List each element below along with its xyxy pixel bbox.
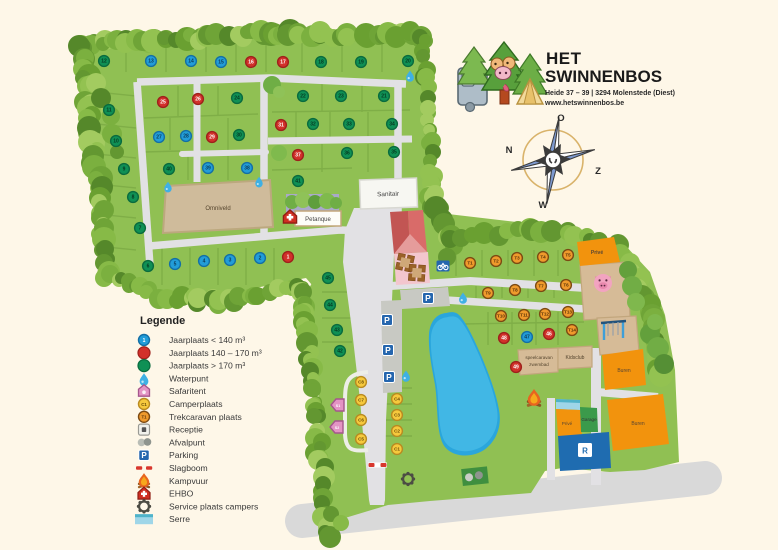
svg-text:T9: T9 [485,291,491,296]
svg-text:C5: C5 [358,437,364,442]
svg-text:14: 14 [188,59,194,65]
svg-text:1: 1 [287,255,290,261]
svg-text:Heide 37 – 39 | 3294 Molenst: Heide 37 – 39 | 3294 Molenstede (Diest) [545,90,675,97]
svg-text:P: P [386,372,392,382]
svg-text:Kidsclub: Kidsclub [566,355,585,361]
svg-text:Privé: Privé [591,250,603,256]
svg-text:34: 34 [389,122,395,128]
svg-text:20: 20 [405,59,411,65]
svg-text:T13: T13 [564,310,572,315]
svg-text:35: 35 [391,150,397,156]
svg-text:Garage: Garage [581,417,597,422]
svg-text:T5: T5 [565,253,571,258]
svg-text:Sanitair: Sanitair [377,191,400,199]
svg-text:2: 2 [259,256,262,262]
svg-text:P: P [385,345,391,355]
svg-text:Jaarplaats 140 – 170 m³: Jaarplaats 140 – 170 m³ [169,348,262,358]
svg-text:HET: HET [546,49,582,68]
svg-text:Receptie: Receptie [169,425,203,435]
svg-text:T3: T3 [514,256,520,261]
svg-text:33: 33 [346,122,352,128]
svg-text:Jaarplaats > 170 m³: Jaarplaats > 170 m³ [169,361,245,371]
svg-text:P: P [425,293,431,303]
svg-text:42: 42 [337,349,343,355]
svg-text:Privé: Privé [562,421,573,426]
svg-text:30: 30 [236,133,242,139]
svg-text:28: 28 [183,134,189,140]
svg-text:EHBO: EHBO [169,489,194,499]
svg-text:C1: C1 [394,447,400,452]
svg-text:Camperplaats: Camperplaats [169,399,223,409]
svg-text:41: 41 [295,179,301,185]
svg-text:12: 12 [101,59,107,65]
svg-text:1: 1 [143,338,146,344]
svg-text:P: P [141,451,147,460]
svg-text:Service plaats campers: Service plaats campers [169,501,258,511]
svg-text:O: O [557,113,564,124]
svg-text:C6: C6 [358,418,364,423]
svg-text:3: 3 [229,258,232,264]
svg-text:T2: T2 [493,259,499,264]
svg-text:31: 31 [278,123,284,129]
svg-text:SWINNENBOS: SWINNENBOS [545,67,662,86]
svg-text:Jaarplaats < 140 m³: Jaarplaats < 140 m³ [169,335,245,345]
svg-text:19: 19 [358,60,364,66]
svg-text:C2: C2 [394,429,400,434]
svg-text:13: 13 [148,59,154,65]
svg-text:10: 10 [113,139,119,145]
svg-text:T12: T12 [541,312,549,317]
svg-text:C3: C3 [394,413,400,418]
svg-text:T7: T7 [538,284,544,289]
svg-text:25: 25 [160,100,166,106]
svg-text:43: 43 [334,328,340,334]
svg-text:27: 27 [156,135,162,141]
svg-text:C7: C7 [358,398,364,403]
svg-text:T4: T4 [540,255,546,260]
svg-text:17: 17 [280,60,286,66]
svg-text:T1: T1 [141,415,147,420]
svg-text:C1: C1 [141,402,147,407]
svg-text:18: 18 [318,60,324,66]
svg-text:Waterpunt: Waterpunt [169,373,209,383]
svg-text:48: 48 [501,336,507,342]
svg-text:Legende: Legende [140,315,185,327]
svg-text:www.hetswinnenbos.be: www.hetswinnenbos.be [544,100,624,107]
svg-text:N: N [506,145,513,156]
svg-text:S1: S1 [336,404,340,408]
svg-text:Trekcaravan plaats: Trekcaravan plaats [169,412,242,422]
svg-text:22: 22 [300,94,306,100]
svg-text:39: 39 [205,166,211,172]
svg-text:32: 32 [310,122,316,128]
svg-text:zwembad: zwembad [529,362,549,367]
svg-text:21: 21 [381,94,387,100]
svg-text:Buren: Buren [631,421,645,427]
svg-text:Z: Z [595,166,601,177]
svg-text:9: 9 [123,167,126,173]
svg-text:5: 5 [174,262,177,268]
svg-text:45: 45 [325,276,331,282]
svg-text:8: 8 [132,195,135,201]
svg-text:W: W [539,200,548,211]
svg-text:P: P [384,315,390,325]
svg-text:15: 15 [218,60,224,66]
svg-text:Slagboom: Slagboom [169,463,208,473]
svg-text:Serre: Serre [169,514,190,524]
svg-text:Safaritent: Safaritent [169,386,206,396]
svg-text:46: 46 [546,332,552,338]
svg-text:Afvalpunt: Afvalpunt [169,437,205,447]
svg-text:40: 40 [166,167,172,173]
svg-text:24: 24 [234,96,240,102]
svg-text:T11: T11 [520,313,528,318]
svg-text:26: 26 [195,97,201,103]
svg-text:16: 16 [248,60,254,66]
svg-text:11: 11 [106,108,112,114]
svg-text:37: 37 [295,153,301,159]
svg-text:38: 38 [244,166,250,172]
svg-text:49: 49 [513,365,519,371]
svg-text:44: 44 [327,303,333,309]
svg-text:T14: T14 [568,328,576,333]
svg-text:C4: C4 [394,397,400,402]
svg-text:4: 4 [203,259,206,265]
svg-text:7: 7 [139,226,142,232]
svg-text:R: R [582,447,588,456]
svg-text:6: 6 [147,264,150,270]
svg-text:23: 23 [338,94,344,100]
svg-text:Buren: Buren [617,368,631,374]
svg-text:T6: T6 [563,283,569,288]
svg-text:Omniveld: Omniveld [205,206,230,212]
svg-text:47: 47 [524,335,530,341]
svg-text:T1: T1 [467,261,473,266]
svg-text:29: 29 [209,135,215,141]
svg-text:Petanque: Petanque [305,217,331,223]
svg-text:S2: S2 [335,426,339,430]
svg-text:Parking: Parking [169,450,198,460]
svg-text:C8: C8 [358,380,364,385]
svg-text:T8: T8 [512,288,518,293]
svg-text:Kampvuur: Kampvuur [169,476,208,486]
svg-text:36: 36 [344,151,350,157]
svg-text:speelcaravan: speelcaravan [525,355,553,360]
svg-text:T10: T10 [497,314,505,319]
